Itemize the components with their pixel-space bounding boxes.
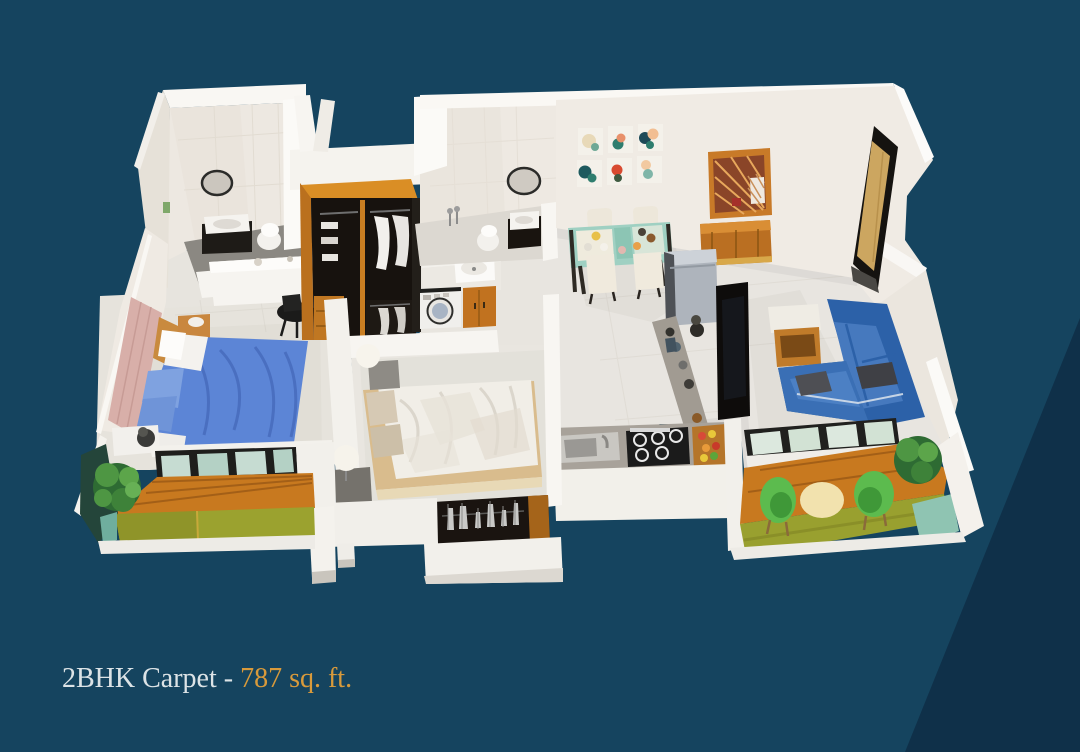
svg-text:2BHK Carpet - 787 sq. ft.: 2BHK Carpet - 787 sq. ft. bbox=[62, 663, 352, 694]
